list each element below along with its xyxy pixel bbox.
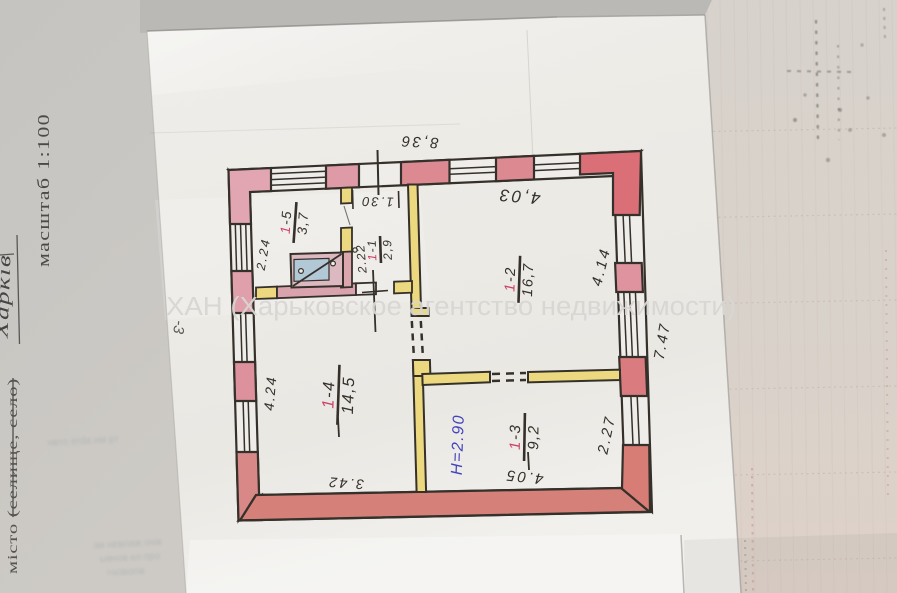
svg-text:Н=2.90: Н=2.90 <box>449 414 468 476</box>
svg-text:3,7: 3,7 <box>295 211 312 235</box>
svg-text:1-1: 1-1 <box>365 239 380 261</box>
svg-text:масштаб 1:100: масштаб 1:100 <box>34 113 53 267</box>
svg-text:8,36: 8,36 <box>399 132 439 151</box>
svg-text:1-2: 1-2 <box>502 266 519 292</box>
svg-text:1-4: 1-4 <box>319 380 338 409</box>
svg-text:16,7: 16,7 <box>520 262 537 297</box>
svg-text:3.42: 3.42 <box>326 474 364 493</box>
svg-text:тновопж: тновопж <box>106 566 145 579</box>
svg-text:1-3: 1-3 <box>507 424 524 450</box>
svg-text:ХАН (Харьковское агентство нед: ХАН (Харьковское агентство недвижимости) <box>166 293 736 321</box>
svg-text:14,5: 14,5 <box>339 376 358 415</box>
svg-text:4,03: 4,03 <box>497 185 542 208</box>
svg-text:1.30: 1.30 <box>360 194 394 210</box>
svg-text:4.24: 4.24 <box>260 375 279 412</box>
svg-text:-3: -3 <box>169 319 188 335</box>
svg-text:місто (селище, село): місто (селище, село) <box>5 378 20 574</box>
svg-text:1-5: 1-5 <box>278 209 295 234</box>
svg-text:9,2: 9,2 <box>525 424 542 450</box>
svg-text:2,9: 2,9 <box>380 238 395 261</box>
